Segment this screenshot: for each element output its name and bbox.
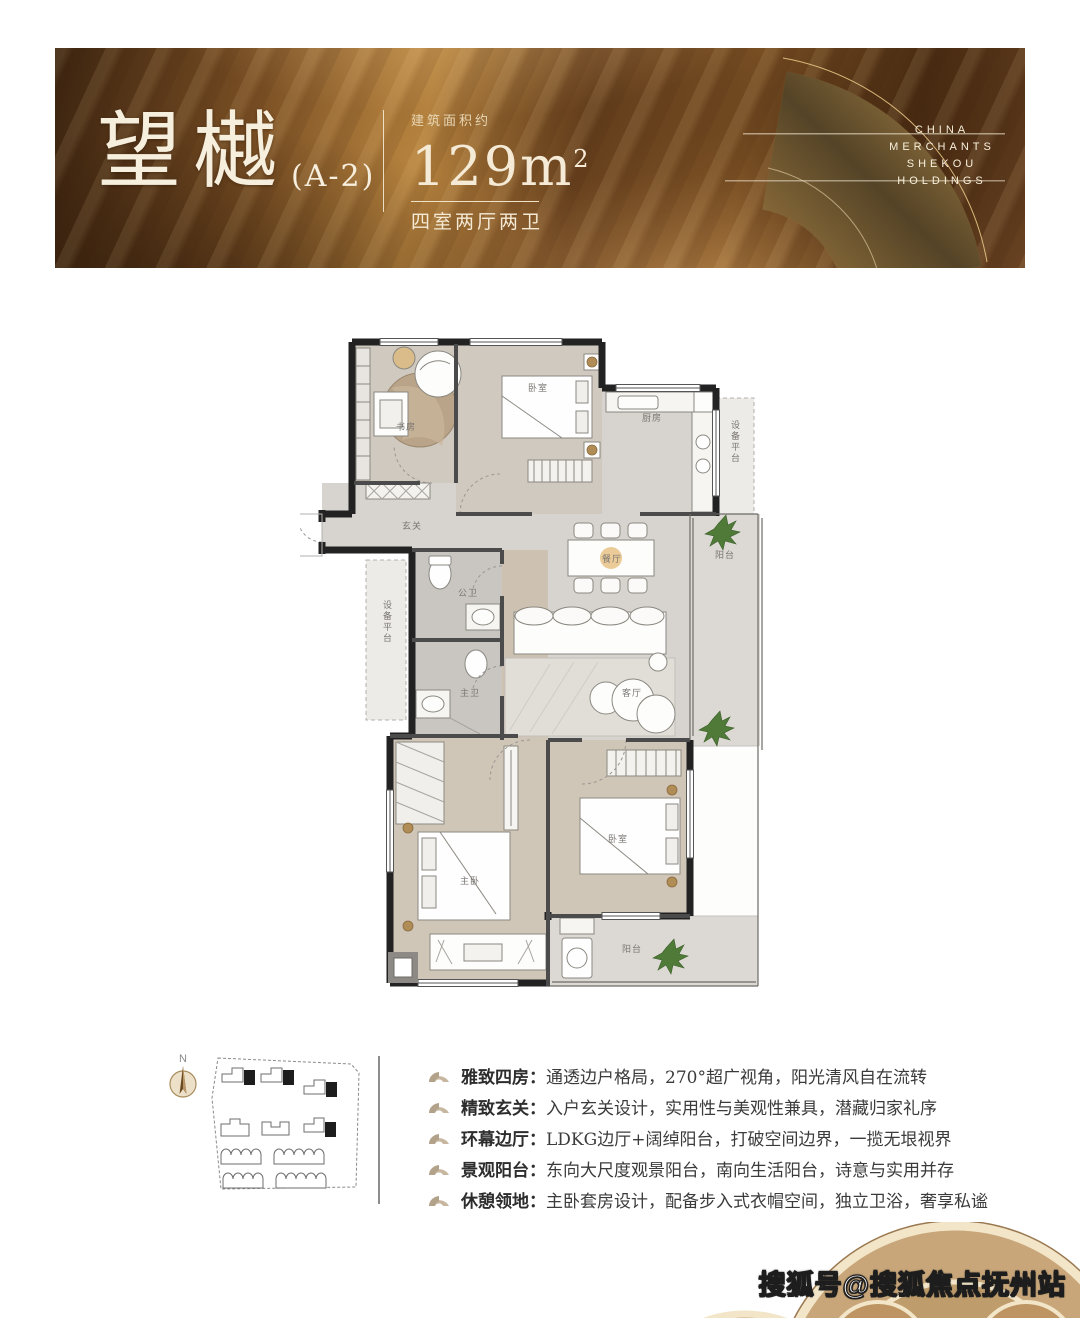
room-label-master-bedroom: 主卧 xyxy=(460,875,480,886)
room-label-balcony-south: 阳台 xyxy=(622,943,642,954)
feature-desc: 主卧套房设计，配备步入式衣帽空间，独立卫浴，奢享私谧 xyxy=(546,1192,988,1212)
area-zone: 建筑面积约 129m2 四室两厅两卫 xyxy=(411,110,591,234)
brand-text: CHINA MERCHANTS SHEKOU HOLDINGS xyxy=(852,122,1025,190)
feature-desc: LDKG边厅+阔绰阳台，打破空间边界，一揽无垠视界 xyxy=(546,1130,951,1150)
header-divider xyxy=(383,110,384,212)
feature-label: 景观阳台： xyxy=(461,1161,546,1181)
area-value: 129m2 xyxy=(411,131,591,195)
room-label-foyer: 玄关 xyxy=(402,520,422,531)
fan-icon xyxy=(426,1161,452,1177)
room-label-bedroom2: 卧室 xyxy=(608,833,628,844)
room-label-bath-public: 公卫 xyxy=(458,588,478,598)
room-label-living: 客厅 xyxy=(622,687,642,698)
watermark: 搜狐号@搜狐焦点抚州站 xyxy=(759,1263,1066,1302)
brand-line: SHEKOU xyxy=(852,156,1025,173)
area-label: 建筑面积约 xyxy=(411,110,591,129)
feature-list: 雅致四房：通透边户格局，270°超广视角，阳光清风自在流转 精致玄关：入户玄关设… xyxy=(426,1060,956,1215)
unit-code: (A-2) xyxy=(291,159,375,194)
feature-row: 休憩领地：主卧套房设计，配备步入式衣帽空间，独立卫浴，奢享私谧 xyxy=(426,1184,956,1215)
feature-text: 环幕边厅：LDKG边厅+阔绰阳台，打破空间边界，一揽无垠视界 xyxy=(461,1125,951,1150)
fan-icon xyxy=(426,1068,452,1084)
feature-text: 精致玄关：入户玄关设计，实用性与美观性兼具，潜藏归家礼序 xyxy=(461,1094,937,1119)
room-label-equip-platform-right: 设备平台 xyxy=(730,420,740,464)
feature-desc: 入户玄关设计，实用性与美观性兼具，潜藏归家礼序 xyxy=(546,1099,937,1119)
room-label-bedroom: 卧室 xyxy=(528,382,548,393)
feature-label: 精致玄关： xyxy=(461,1099,546,1119)
brand-line: MERCHANTS xyxy=(852,139,1025,156)
layout-description: 四室两厅两卫 xyxy=(411,207,591,234)
site-buildings xyxy=(221,1068,337,1188)
room-label-dining: 餐厅 xyxy=(602,553,622,564)
header-banner: 望樾(A-2) 建筑面积约 129m2 四室两厅两卫 CHINA MERCHAN… xyxy=(55,48,1025,268)
feature-row: 精致玄关：入户玄关设计，实用性与美观性兼具，潜藏归家礼序 xyxy=(426,1091,956,1122)
section-divider xyxy=(378,1056,380,1204)
feature-row: 雅致四房：通透边户格局，270°超广视角，阳光清风自在流转 xyxy=(426,1060,956,1091)
feature-desc: 东向大尺度观景阳台，南向生活阳台，诗意与实用并存 xyxy=(546,1161,954,1181)
feature-label: 雅致四房： xyxy=(461,1068,546,1088)
room-label-bath-master: 主卫 xyxy=(460,687,480,698)
fan-icon xyxy=(426,1099,452,1115)
poster-page: { "header": { "title": "望樾", "unit_code"… xyxy=(0,0,1080,1318)
feature-label: 环幕边厅： xyxy=(461,1130,546,1150)
feature-text: 休憩领地：主卧套房设计，配备步入式衣帽空间，独立卫浴，奢享私谧 xyxy=(461,1187,988,1212)
north-label: N xyxy=(179,1053,187,1065)
room-label-balcony-east: 阳台 xyxy=(715,549,735,560)
feature-desc: 通透边户格局，270°超广视角，阳光清风自在流转 xyxy=(546,1068,927,1088)
feature-row: 景观阳台：东向大尺度观景阳台，南向生活阳台，诗意与实用并存 xyxy=(426,1153,956,1184)
brand-line: CHINA xyxy=(852,122,1025,139)
fan-icon xyxy=(426,1192,452,1208)
site-plan: N xyxy=(158,1040,390,1222)
area-number: 129m xyxy=(411,135,573,198)
room-label-study: 书房 xyxy=(396,421,416,432)
area-superscript: 2 xyxy=(573,145,590,173)
floor-plan: 书房 卧室 厨房 设备平台 玄关 餐厅 公卫 主卫 设备平台 客厅 阳台 主卧 … xyxy=(300,318,780,1010)
brand-line: HOLDINGS xyxy=(852,173,1025,190)
feature-text: 雅致四房：通透边户格局，270°超广视角，阳光清风自在流转 xyxy=(461,1063,927,1088)
compass: N xyxy=(170,1053,196,1097)
room-label-equip-platform-left: 设备平台 xyxy=(382,600,392,644)
fan-icon xyxy=(426,1130,452,1146)
feature-label: 休憩领地： xyxy=(461,1192,546,1212)
project-title: 望樾 xyxy=(97,102,289,200)
feature-text: 景观阳台：东向大尺度观景阳台，南向生活阳台，诗意与实用并存 xyxy=(461,1156,954,1181)
feature-row: 环幕边厅：LDKG边厅+阔绰阳台，打破空间边界，一揽无垠视界 xyxy=(426,1122,956,1153)
area-rule xyxy=(411,201,539,202)
project-title-zone: 望樾(A-2) xyxy=(97,106,375,196)
room-label-kitchen: 厨房 xyxy=(642,412,662,423)
